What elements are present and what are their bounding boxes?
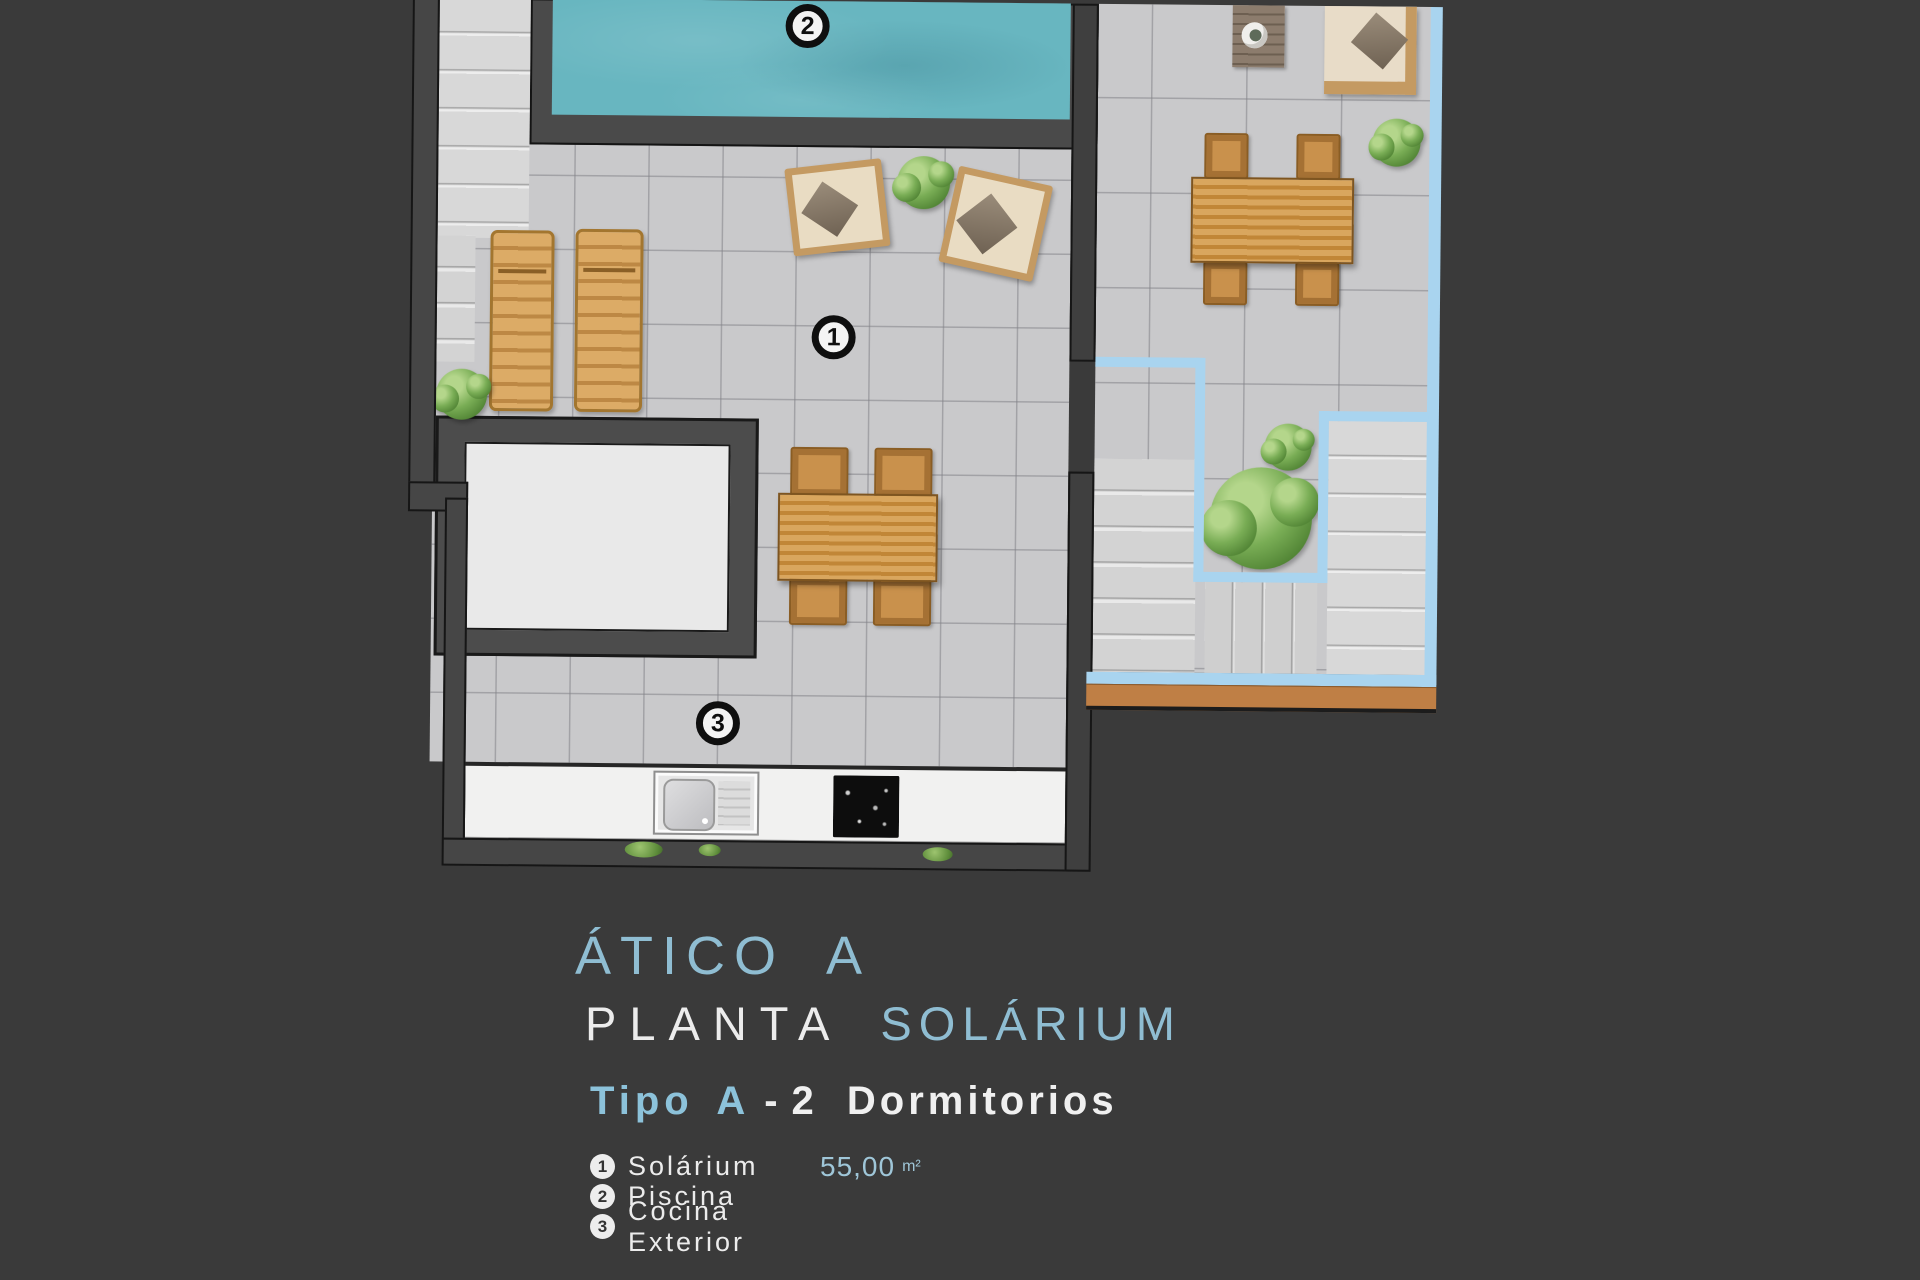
sun-lounger — [489, 230, 555, 412]
wall-left-upper — [408, 0, 440, 489]
dining-chair — [790, 447, 848, 498]
wall-bottom — [442, 838, 1091, 872]
plant-bush — [1372, 118, 1420, 166]
plant-tuft — [625, 841, 663, 857]
page-subtitle: PLANTA SOLÁRIUM — [585, 996, 1182, 1051]
dining-chair — [1204, 133, 1248, 179]
boundary-outline-patio-right — [1317, 411, 1329, 583]
kitchen-counter — [465, 762, 1066, 846]
kitchen-cooktop — [833, 775, 900, 838]
outdoor-sofa — [1324, 6, 1417, 95]
plant-bush — [1264, 423, 1311, 470]
cushion — [957, 193, 1018, 253]
cushion — [801, 182, 858, 238]
unit-type-label: Tipo A — [590, 1079, 750, 1124]
dining-chair — [874, 448, 932, 499]
dining-chair — [873, 578, 931, 627]
legend-label: Cocina Exterior — [628, 1196, 820, 1258]
boundary-outline-patio-bottom — [1193, 572, 1327, 583]
boundary-outline-passage — [1095, 357, 1199, 368]
plant-tuft — [923, 847, 953, 861]
legend-number-badge: 3 — [590, 1214, 615, 1239]
legend-label: Solárium — [628, 1151, 820, 1182]
stairs-top-left — [438, 0, 531, 238]
dining-chair — [1295, 262, 1339, 306]
marker-solarium: 1 — [811, 315, 855, 359]
stairs-right — [1326, 421, 1428, 675]
stairwell-enclosure-interior — [463, 442, 731, 633]
legend: 1 Solárium 55,00 m² 2 Piscina 3 Cocina E… — [590, 1152, 921, 1241]
dining-chair — [1296, 134, 1340, 180]
sun-lounger — [574, 229, 644, 413]
plant-tuft — [699, 844, 721, 856]
marker-cocina-number: 3 — [711, 709, 725, 738]
boundary-outline-stairs-top — [1319, 411, 1429, 422]
marker-solarium-number: 1 — [827, 323, 841, 352]
subtitle-planta: PLANTA — [585, 996, 842, 1051]
marker-piscina: 2 — [785, 4, 829, 48]
legend-row-solarium: 1 Solárium 55,00 m² — [590, 1152, 921, 1181]
wall-left-lower — [442, 498, 469, 866]
floorplan-page: 2 1 3 ÁTICO A PLANTA SOLÁRIUM Tipo A - 2… — [0, 0, 1920, 1280]
stairs-center — [1092, 459, 1196, 673]
kitchen-sink — [653, 771, 760, 836]
dining-chair — [1203, 261, 1247, 305]
plant-bush — [897, 156, 951, 210]
sink-basin — [663, 779, 715, 831]
stairs-bottom — [1204, 582, 1317, 674]
wall-divider-upper — [1069, 4, 1098, 362]
legend-number-badge: 1 — [590, 1154, 615, 1179]
stairs-top-left-lower — [436, 235, 475, 361]
unit-bedrooms-label: 2 Dormitorios — [792, 1079, 1118, 1124]
marker-piscina-number: 2 — [801, 11, 815, 40]
dining-chair — [789, 577, 847, 626]
cushion — [1351, 13, 1408, 70]
plant-bush — [1209, 467, 1312, 570]
unit-type-dash: - — [764, 1079, 777, 1124]
wood-deck-strip — [1086, 684, 1436, 713]
legend-number-badge: 2 — [590, 1184, 615, 1209]
dining-table — [777, 493, 938, 583]
grill-side-table — [1232, 5, 1285, 67]
legend-row-cocina: 3 Cocina Exterior — [590, 1212, 921, 1241]
plate-item — [1250, 29, 1262, 41]
subtitle-solarium: SOLÁRIUM — [880, 996, 1182, 1051]
legend-area-unit: m² — [902, 1158, 921, 1176]
dining-table — [1190, 177, 1354, 265]
marker-cocina: 3 — [696, 701, 740, 745]
page-title: ÁTICO A — [575, 925, 871, 987]
unit-type-line: Tipo A - 2 Dormitorios — [590, 1079, 1118, 1124]
plant-bush — [436, 368, 487, 419]
lounge-armchair — [784, 158, 890, 256]
sink-drainboard — [718, 781, 750, 825]
legend-area-value: 55,00 — [820, 1151, 895, 1183]
